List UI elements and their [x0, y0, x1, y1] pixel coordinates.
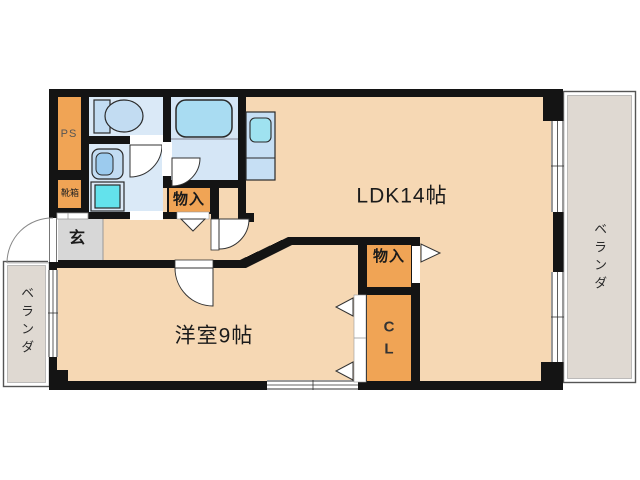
window-right-upper [551, 121, 564, 212]
veranda-left-label: ベランダ [19, 286, 33, 358]
sink-icon [92, 149, 123, 179]
entrance-label: 玄 [69, 230, 85, 248]
toilet-icon [94, 100, 143, 133]
closet-label: CL [384, 316, 395, 360]
closet-label-c: C [384, 316, 395, 338]
storage-hall-label: 物入 [173, 192, 205, 209]
kitchen-counter-icon [246, 112, 275, 180]
washing-machine-icon [91, 182, 124, 211]
washroom-doorway [130, 211, 163, 220]
western-room-label: 洋室9帖 [175, 324, 254, 347]
pipe-space-label: PS [61, 128, 78, 140]
floor-plan: LDK14帖 洋室9帖 物入 物入 CL 玄 PS 靴箱 ベランダ ベランダ [0, 0, 640, 480]
window-west-room-left [48, 270, 58, 357]
closet-label-l: L [384, 338, 395, 360]
veranda-right-label: ベランダ [592, 222, 606, 294]
window-right-lower [551, 272, 564, 362]
entrance-door [7, 218, 58, 263]
ldk-label: LDK14帖 [356, 184, 447, 207]
bathtub-icon [176, 100, 232, 137]
floor-plan-drawing [0, 0, 640, 480]
storage-ldk-label: 物入 [373, 249, 405, 266]
window-west-room-bottom [267, 380, 358, 390]
entrance-step [57, 213, 88, 219]
shoe-box-label: 靴箱 [61, 189, 79, 199]
